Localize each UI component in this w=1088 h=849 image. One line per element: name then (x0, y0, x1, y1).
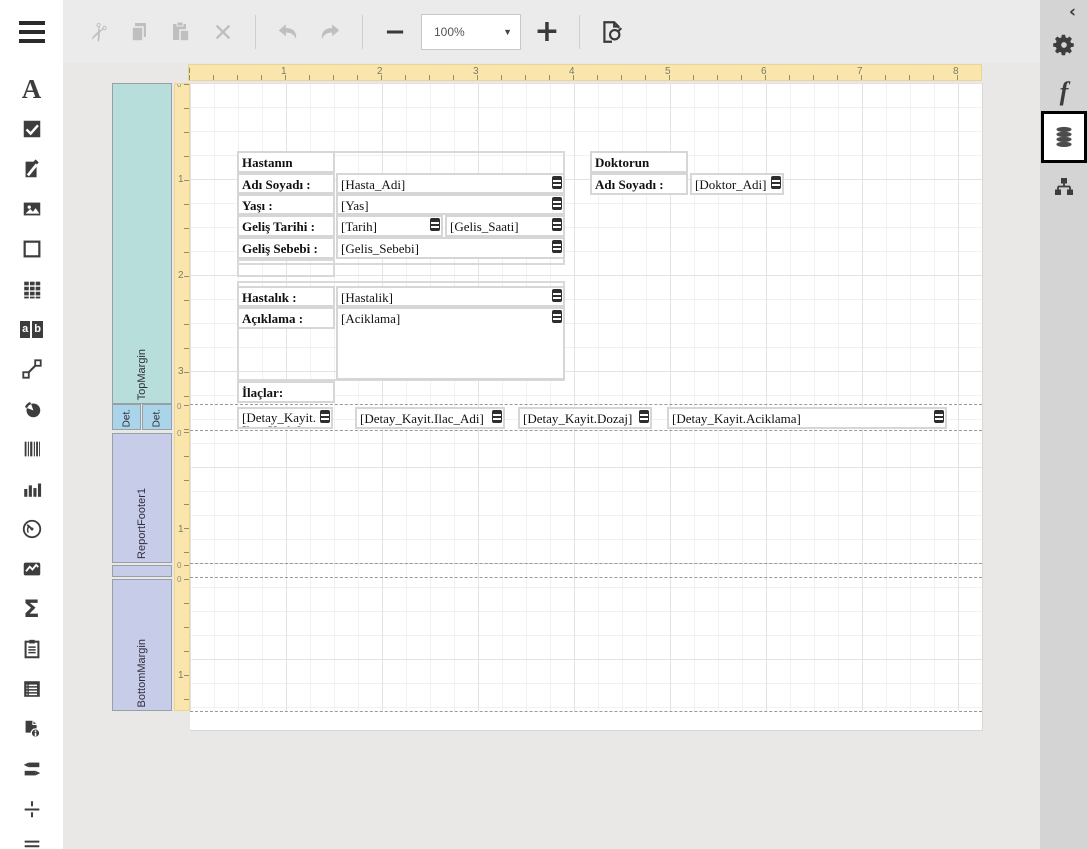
description-label[interactable]: Açıklama : (237, 307, 335, 329)
doctor-header-label[interactable]: Doktorun (590, 151, 688, 173)
ruler-ticks (184, 579, 189, 711)
panel-sidebar: ‹ f (1040, 0, 1088, 849)
minus-icon: − (384, 17, 406, 47)
undo-button[interactable] (272, 16, 304, 48)
band-separator-dashed (190, 577, 982, 578)
bar-chart-icon (21, 478, 43, 500)
field-text: [Detay_Kayit.Ilac_Kodu] (242, 410, 316, 429)
clipboard-icon (21, 638, 43, 660)
patient-age-field[interactable]: [Yas] (336, 194, 565, 215)
zoom-in-button[interactable]: + (531, 16, 563, 48)
toolbox-page-break[interactable] (0, 749, 63, 789)
arrival-date-label[interactable]: Geliş Tarihi : (237, 215, 335, 237)
database-field-icon (934, 410, 944, 423)
horizontal-ruler: 0 1 2 3 4 5 6 7 8 (188, 64, 982, 81)
band-label: ReportFooter1 (136, 488, 148, 559)
shape-icon (21, 398, 43, 420)
label-a-icon: A (22, 74, 42, 105)
cross-band-line-icon (21, 798, 43, 820)
toolbox-chart[interactable] (0, 469, 63, 509)
function-f-icon: f (1060, 77, 1069, 107)
copy-button[interactable] (123, 16, 155, 48)
ruler-number: 0 (177, 561, 181, 570)
character-comb-icon: ab (19, 320, 44, 339)
database-field-icon (430, 218, 440, 231)
plus-icon: + (534, 14, 559, 49)
delete-button[interactable] (207, 16, 239, 48)
database-field-icon (492, 410, 502, 423)
ruler-ticks (184, 565, 189, 578)
sigma-icon: Σ (23, 595, 39, 623)
toolbox-clipboard[interactable] (0, 629, 63, 669)
database-field-icon (552, 218, 562, 231)
ruler-number: 1 (178, 670, 184, 681)
ruler-ticks (184, 432, 189, 564)
ruler-number: 2 (377, 66, 383, 77)
ruler-number: 1 (178, 174, 184, 185)
patient-age-label[interactable]: Yaşı : (237, 194, 335, 215)
toolbox-barcode[interactable] (0, 429, 63, 469)
scissors-icon: ✂ (82, 17, 112, 45)
band-label: Det. (121, 409, 132, 427)
toolbox-panel[interactable] (0, 229, 63, 269)
band-bottom-margin[interactable]: BottomMargin (112, 579, 172, 711)
toolbox-picture[interactable] (0, 189, 63, 229)
close-x-icon (212, 21, 234, 43)
zoom-select[interactable]: 100% ▼ (421, 14, 521, 50)
database-field-icon (320, 410, 330, 423)
band-detail-report[interactable]: Det. (112, 404, 141, 430)
chevron-down-icon: ▼ (503, 27, 512, 37)
ruler-number: 6 (761, 66, 767, 77)
illness-label[interactable]: Hastalık : (237, 286, 335, 307)
page-break-icon (21, 758, 43, 780)
properties-tab[interactable] (1040, 28, 1088, 62)
illness-field[interactable]: [Hastalik] (336, 286, 565, 307)
cross-band-box-icon (21, 838, 43, 849)
gear-icon (1051, 32, 1077, 58)
drugs-label[interactable]: İlaçlar: (237, 381, 335, 403)
field-text: [Yas] (341, 198, 369, 213)
band-report-footer[interactable]: ReportFooter1 (112, 433, 172, 563)
patient-label-column-outline[interactable] (237, 259, 335, 277)
tree-hierarchy-icon (1052, 175, 1076, 199)
toolbox-gauge[interactable] (0, 509, 63, 549)
ruler-number: 8 (953, 66, 959, 77)
toolbox-richtext[interactable] (0, 149, 63, 189)
zoom-value: 100% (434, 25, 465, 39)
toolbox-character-comb[interactable]: ab (0, 309, 63, 349)
checkbox-icon (21, 118, 43, 140)
database-field-icon (552, 240, 562, 253)
band-separator-dashed (190, 563, 982, 564)
ruler-ticks (184, 405, 189, 432)
menu-button[interactable] (0, 0, 63, 63)
ruler-number: 0 (177, 575, 181, 584)
arrival-reason-label[interactable]: Geliş Sebebi : (237, 237, 335, 259)
ruler-number: 0 (177, 83, 181, 89)
database-field-icon (552, 176, 562, 189)
database-field-icon (771, 176, 781, 189)
band-strip: TopMargin Det. Det. ReportFooter1 Bottom… (112, 83, 172, 711)
database-field-icon (552, 289, 562, 302)
ruler-ticks (184, 84, 189, 405)
doctor-name-field[interactable]: [Doktor_Adi] (690, 173, 784, 195)
table-icon (21, 278, 43, 300)
field-text: [Hasta_Adi] (341, 177, 405, 192)
vertical-ruler: 0 1 2 3 0 0 1 0 0 1 (174, 83, 190, 711)
field-text: [Doktor_Adi] (695, 177, 767, 192)
toolbar-buttons: ✂ − 100% ▼ + (63, 0, 1040, 63)
band-label: BottomMargin (136, 639, 148, 707)
toolbox-cross-band-box[interactable] (0, 829, 63, 849)
ruler-number: 3 (178, 366, 184, 377)
detail-drug-name-field[interactable]: [Detay_Kayit.Ilac_Adi] (355, 407, 505, 429)
band-separator-dashed (190, 404, 982, 405)
preview-button[interactable] (596, 16, 628, 48)
detail-dosage-field[interactable]: [Detay_Kayit.Dozaj] (518, 407, 652, 429)
ruler-number: 0 (177, 429, 181, 438)
cut-button[interactable]: ✂ (81, 16, 113, 48)
redo-arrow-icon (317, 19, 343, 45)
band-detail[interactable]: Det. (142, 404, 172, 430)
band-separator-dashed (190, 711, 982, 712)
band-label: Det. (152, 409, 163, 427)
barcode-icon (21, 438, 43, 460)
gauge-icon (21, 518, 43, 540)
zoom-out-button[interactable]: − (379, 16, 411, 48)
field-text: [Gelis_Sebebi] (341, 241, 419, 256)
toolbox-cross-band-line[interactable] (0, 789, 63, 829)
toolbox-shape[interactable] (0, 389, 63, 429)
doctor-name-label[interactable]: Adı Soyadı : (590, 173, 688, 195)
arrival-date-field[interactable]: [Tarih] (336, 215, 443, 237)
panel-icon (21, 238, 43, 260)
sparkline-icon (21, 558, 43, 580)
band-page-footer[interactable] (112, 565, 172, 577)
toolbox-line[interactable] (0, 349, 63, 389)
toolbox-sparkline[interactable] (0, 549, 63, 589)
picture-icon (21, 198, 43, 220)
database-field-icon (639, 410, 649, 423)
list-icon (21, 678, 43, 700)
field-text: [Detay_Kayit.Aciklama] (672, 411, 801, 426)
ruler-number: 3 (473, 66, 479, 77)
toolbar-separator (579, 15, 580, 49)
ruler-number: 0 (177, 402, 181, 411)
database-field-icon (552, 197, 562, 210)
paste-button[interactable] (165, 16, 197, 48)
redo-button[interactable] (314, 16, 346, 48)
field-text: [Detay_Kayit.Dozaj] (523, 411, 632, 426)
expressions-tab[interactable]: f (1040, 75, 1088, 109)
hamburger-icon (19, 21, 45, 25)
design-canvas: 0 1 2 3 4 5 6 7 8 TopMargin Det. Det. Re… (63, 63, 1040, 849)
ruler-number: 1 (178, 524, 184, 535)
ruler-number: 7 (857, 66, 863, 77)
ruler-number: 1 (281, 66, 287, 77)
arrival-reason-field[interactable]: [Gelis_Sebebi] (336, 237, 565, 259)
field-text: [Aciklama] (341, 311, 400, 326)
ruler-number: 5 (665, 66, 671, 77)
line-icon (21, 358, 43, 380)
detail-drug-code-field[interactable]: [Detay_Kayit.Ilac_Kodu] (237, 407, 333, 429)
toolbar-separator (255, 15, 256, 49)
field-text: [Hastalik] (341, 290, 393, 305)
undo-arrow-icon (275, 19, 301, 45)
patient-name-label[interactable]: Adı Soyadı : (237, 173, 335, 194)
report-page-surface[interactable]: Hastanın Adı Soyadı : [Hasta_Adi] Yaşı :… (190, 83, 983, 731)
collapse-chevron-icon[interactable]: ‹ (1069, 2, 1076, 22)
copy-icon (127, 20, 151, 44)
band-separator-dashed (190, 430, 982, 431)
toolbar-separator (362, 15, 363, 49)
description-field[interactable]: [Aciklama] (336, 307, 565, 380)
ruler-number: 2 (178, 270, 184, 281)
patient-name-field[interactable]: [Hasta_Adi] (336, 173, 565, 194)
ruler-number: 0 (188, 66, 191, 77)
field-text: [Tarih] (341, 219, 377, 234)
subreport-info-icon (21, 718, 43, 740)
field-text: [Detay_Kayit.Ilac_Adi] (360, 411, 484, 426)
field-text: [Gelis_Saati] (450, 219, 519, 234)
preview-magnifier-icon (599, 19, 625, 45)
database-icon (1051, 124, 1077, 150)
rich-text-icon (21, 158, 43, 180)
band-label: TopMargin (136, 349, 148, 400)
toolbox-table[interactable] (0, 269, 63, 309)
patient-header-label[interactable]: Hastanın (237, 151, 335, 173)
field-list-tab[interactable] (1041, 111, 1087, 163)
database-field-icon (552, 310, 562, 323)
detail-description-field[interactable]: [Detay_Kayit.Aciklama] (667, 407, 947, 429)
toolbox-sidebar: A ab Σ (0, 63, 64, 849)
report-explorer-tab[interactable] (1040, 170, 1088, 204)
ruler-number: 4 (569, 66, 575, 77)
arrival-time-field[interactable]: [Gelis_Saati] (445, 215, 565, 237)
toolbox-summary[interactable]: Σ (0, 589, 63, 629)
top-toolbar: ✂ − 100% ▼ + (0, 0, 1088, 63)
toolbox-toc[interactable] (0, 669, 63, 709)
toolbox-subreport[interactable] (0, 709, 63, 749)
paste-icon (169, 20, 193, 44)
toolbox-checkbox[interactable] (0, 109, 63, 149)
band-top-margin[interactable]: TopMargin (112, 83, 172, 404)
toolbox-label[interactable]: A (0, 69, 63, 109)
